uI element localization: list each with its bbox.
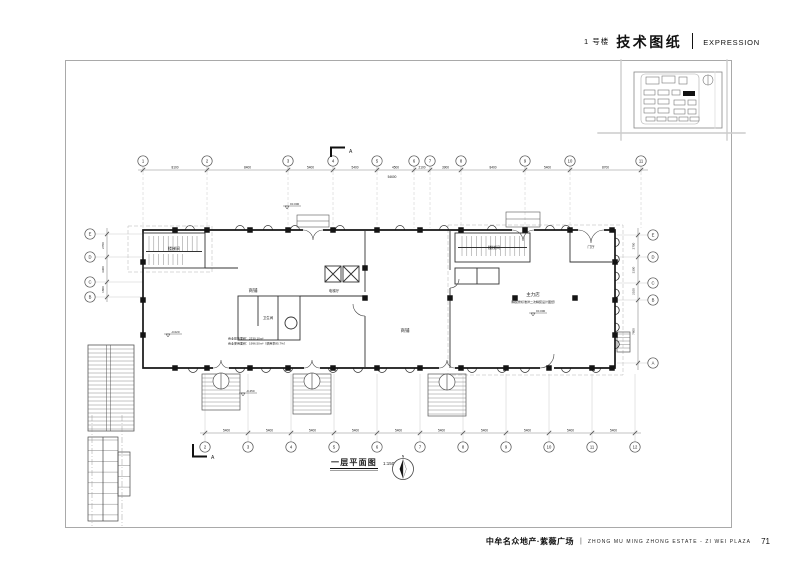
room-label: 门厅 bbox=[588, 244, 596, 249]
column bbox=[172, 227, 178, 233]
caption-group: 一层平面图 1:150 N bbox=[330, 455, 414, 480]
column bbox=[546, 365, 552, 371]
dim-value: 3900 bbox=[442, 165, 449, 169]
column bbox=[374, 227, 380, 233]
dim-value: 2700 bbox=[632, 242, 636, 249]
column bbox=[285, 365, 291, 371]
column bbox=[417, 227, 423, 233]
grid-bubble-label: 10 bbox=[568, 159, 573, 164]
grid-bubble-label: E bbox=[89, 232, 92, 237]
project-name-cn: 中牟名众地产·紫薇广场 bbox=[486, 536, 574, 547]
elevation-label: ±0.000 bbox=[290, 202, 299, 206]
dim-value: 3300 bbox=[101, 266, 105, 273]
grid-bubble-label: 10 bbox=[547, 445, 552, 450]
exterior-wall bbox=[143, 230, 615, 368]
room-label: 楼梯间 bbox=[488, 244, 500, 250]
dim-value: 1800 bbox=[101, 286, 105, 293]
dim-value: 5400 bbox=[352, 428, 359, 432]
room-label: 电梯厅 bbox=[329, 288, 340, 293]
annex-grid bbox=[88, 437, 130, 521]
dim-value: 7800 bbox=[632, 328, 636, 335]
section-letter: A bbox=[349, 149, 353, 155]
grid-bubble-label: C bbox=[651, 281, 654, 286]
column bbox=[612, 259, 618, 265]
column bbox=[612, 297, 618, 303]
column bbox=[417, 365, 423, 371]
column bbox=[285, 227, 291, 233]
elevation-label: -0.020 bbox=[171, 330, 180, 334]
interior-walls bbox=[143, 230, 612, 368]
page-footer: 中牟名众地产·紫薇广场 | ZHONG MU MING ZHONG ESTATE… bbox=[486, 536, 770, 547]
dim-value: 5400 bbox=[438, 428, 445, 432]
column bbox=[362, 295, 368, 301]
grid-bubble-label: A bbox=[652, 361, 655, 366]
room-label: 商铺 bbox=[401, 327, 410, 334]
area-note: （精装修标准详二次精装设计图纸） bbox=[509, 299, 557, 304]
column bbox=[140, 259, 146, 265]
grid-bubble-label: B bbox=[89, 295, 92, 300]
wall-pilasters bbox=[186, 226, 601, 373]
footer-divider: | bbox=[580, 538, 582, 545]
svg-text:N: N bbox=[402, 455, 405, 459]
column bbox=[567, 227, 573, 233]
column bbox=[247, 227, 253, 233]
plan-caption: 一层平面图 bbox=[331, 458, 377, 467]
column bbox=[609, 227, 615, 233]
grid-left: E2700D3300C1800B bbox=[85, 228, 143, 302]
page-number: 71 bbox=[761, 537, 770, 546]
floor-plan: 1810028400354004540054500621007390088400… bbox=[85, 148, 658, 527]
room-label: 楼梯间 bbox=[168, 245, 180, 251]
section-letter: A bbox=[211, 455, 215, 461]
column bbox=[458, 365, 464, 371]
dim-value: 5400 bbox=[395, 428, 402, 432]
dim-value: 8400 bbox=[244, 165, 251, 169]
grid-bubble-label: 11 bbox=[590, 445, 595, 450]
structural-columns bbox=[140, 227, 618, 371]
dim-value: 5400 bbox=[524, 428, 531, 432]
dim-value: 8400 bbox=[489, 165, 496, 169]
column bbox=[330, 227, 336, 233]
column bbox=[572, 295, 578, 301]
north-arrow-icon: N bbox=[393, 455, 414, 480]
exterior-stairs bbox=[88, 332, 630, 431]
dim-value: 5400 bbox=[544, 165, 551, 169]
dim-value: 5400 bbox=[309, 428, 316, 432]
column bbox=[503, 365, 509, 371]
grid-extension-dashed bbox=[92, 415, 122, 526]
column bbox=[140, 297, 146, 303]
grid-bubble-label: C bbox=[88, 280, 91, 285]
dim-value: 5400 bbox=[610, 428, 617, 432]
column bbox=[247, 365, 253, 371]
dim-total: 54600 bbox=[388, 175, 397, 179]
column bbox=[522, 227, 528, 233]
column bbox=[612, 332, 618, 338]
drawing-canvas: 1810028400354004540054500621007390088400… bbox=[0, 0, 800, 565]
grid-bubble-label: 12 bbox=[633, 445, 638, 450]
area-note: 商业使用面积：1996.50m²（使用率85.7%） bbox=[228, 341, 287, 346]
grid-bubble-label: D bbox=[88, 255, 91, 260]
door-swings bbox=[213, 230, 604, 368]
keyplan bbox=[598, 60, 745, 140]
dim-value: 5400 bbox=[351, 165, 358, 169]
keyplan-highlighted-building bbox=[683, 91, 695, 96]
grid-bubble-label: D bbox=[651, 255, 654, 260]
column bbox=[374, 365, 380, 371]
dim-value: 5400 bbox=[307, 165, 314, 169]
grid-bubble-label: 11 bbox=[639, 159, 644, 164]
room-label: 商铺 bbox=[249, 287, 258, 294]
dim-value: 2700 bbox=[101, 242, 105, 249]
column bbox=[458, 227, 464, 233]
column bbox=[172, 365, 178, 371]
grid-bubble-label: B bbox=[652, 298, 655, 303]
elevation-label: -0.450 bbox=[246, 389, 255, 393]
column bbox=[204, 365, 210, 371]
dim-value: 2100 bbox=[418, 165, 425, 169]
project-name-en: ZHONG MU MING ZHONG ESTATE - ZI WEI PLAZ… bbox=[588, 539, 751, 545]
door-openings bbox=[213, 228, 604, 371]
column bbox=[362, 265, 368, 271]
dim-value: 5400 bbox=[223, 428, 230, 432]
dim-value: 8100 bbox=[171, 165, 178, 169]
room-labels: 楼梯间 商铺 电梯厅 卫生间 楼梯间 门厅 主力店 商铺 商业建筑面积：2330… bbox=[168, 244, 595, 346]
column bbox=[609, 365, 615, 371]
area-note: 商业建筑面积：2330.10m² bbox=[228, 336, 263, 341]
room-label: 主力店 bbox=[526, 291, 540, 298]
dim-value: 5400 bbox=[567, 428, 574, 432]
room-label: 卫生间 bbox=[263, 315, 274, 320]
grid-bubble-label: E bbox=[652, 233, 655, 238]
dim-value: 5400 bbox=[481, 428, 488, 432]
dim-value: 8700 bbox=[602, 165, 609, 169]
dim-value: 3300 bbox=[632, 266, 636, 273]
grid-top: 1810028400354004540054500621007390088400… bbox=[138, 156, 648, 228]
dim-value: 5400 bbox=[266, 428, 273, 432]
column bbox=[204, 227, 210, 233]
column bbox=[330, 365, 336, 371]
column bbox=[589, 365, 595, 371]
elevation-label: ±0.000 bbox=[536, 309, 545, 313]
grid-bottom: 2540035400454005540065400754008540095400… bbox=[200, 374, 641, 452]
dim-value: 2100 bbox=[632, 288, 636, 295]
dim-value: 4500 bbox=[392, 165, 399, 169]
column bbox=[447, 295, 453, 301]
column bbox=[140, 332, 146, 338]
